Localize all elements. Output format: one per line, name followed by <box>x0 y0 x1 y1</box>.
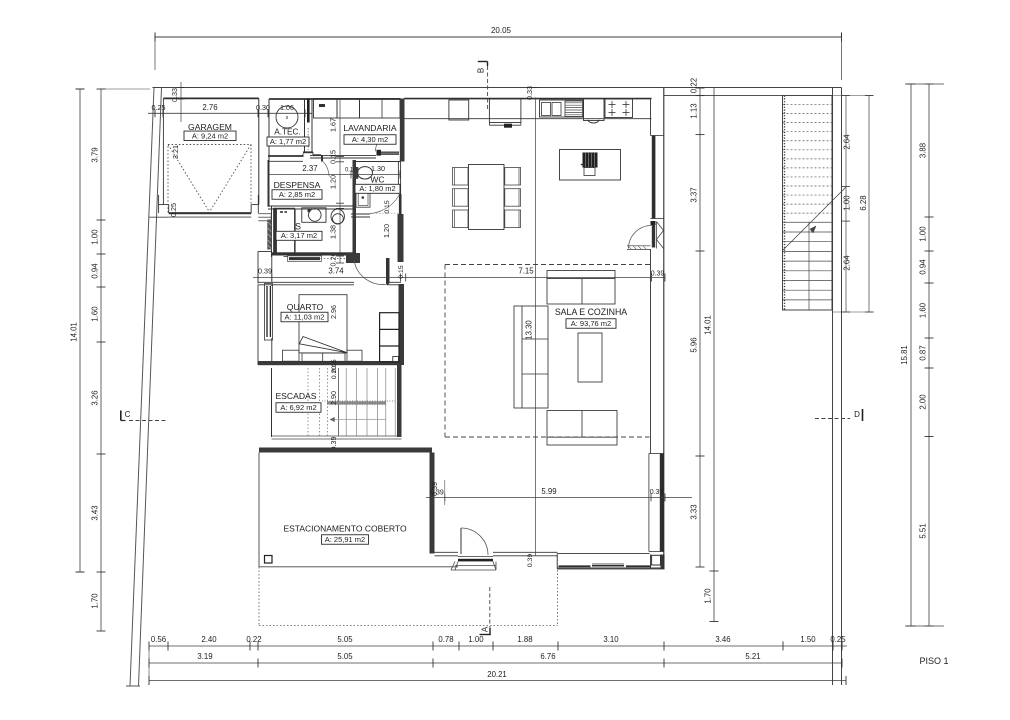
svg-text:7.15: 7.15 <box>518 267 534 276</box>
svg-text:0.33: 0.33 <box>170 88 179 102</box>
svg-text:A: 2,85 m2: A: 2,85 m2 <box>279 190 315 199</box>
svg-text:3.21: 3.21 <box>171 145 180 159</box>
svg-text:5.21: 5.21 <box>745 652 760 661</box>
svg-text:D: D <box>854 410 860 419</box>
svg-text:0.25: 0.25 <box>830 635 846 644</box>
svg-text:2.76: 2.76 <box>202 103 217 112</box>
svg-text:A: 6,92 m2: A: 6,92 m2 <box>280 403 316 412</box>
svg-text:5.51: 5.51 <box>919 523 928 538</box>
svg-text:0.15: 0.15 <box>329 150 338 164</box>
svg-text:2.64: 2.64 <box>843 255 852 271</box>
svg-text:1.00: 1.00 <box>468 635 484 644</box>
svg-text:0.39: 0.39 <box>650 489 664 496</box>
svg-text:DESPENSA: DESPENSA <box>274 180 321 190</box>
svg-text:0.15: 0.15 <box>384 200 391 213</box>
svg-text:0.94: 0.94 <box>919 259 928 275</box>
svg-text:14.01: 14.01 <box>704 315 713 335</box>
svg-text:0.22: 0.22 <box>690 78 699 93</box>
svg-text:3.88: 3.88 <box>919 143 928 158</box>
svg-text:1.00: 1.00 <box>843 195 852 211</box>
svg-text:2.96: 2.96 <box>329 305 338 319</box>
svg-text:0.78: 0.78 <box>438 635 453 644</box>
svg-text:A: 9,24 m2: A: 9,24 m2 <box>192 131 228 140</box>
svg-text:1.60: 1.60 <box>919 302 928 318</box>
svg-text:A: 1,77 m2: A: 1,77 m2 <box>270 137 306 146</box>
svg-text:A: 3,17 m2: A: 3,17 m2 <box>281 231 317 240</box>
svg-text:0.30: 0.30 <box>256 103 270 112</box>
svg-text:1.13: 1.13 <box>690 103 699 118</box>
svg-text:5.99: 5.99 <box>541 487 556 496</box>
svg-text:1.70: 1.70 <box>704 588 713 604</box>
svg-text:2.40: 2.40 <box>201 635 217 644</box>
svg-text:B: B <box>477 68 486 73</box>
svg-text:3.10: 3.10 <box>603 635 619 644</box>
svg-text:5.96: 5.96 <box>690 337 699 352</box>
svg-text:A: 11,03 m2: A: 11,03 m2 <box>285 313 325 322</box>
svg-text:0.94: 0.94 <box>91 263 100 279</box>
svg-text:C: C <box>125 410 131 419</box>
svg-text:0.22: 0.22 <box>246 635 261 644</box>
svg-text:1.70: 1.70 <box>91 593 100 609</box>
svg-text:5.05: 5.05 <box>337 652 353 661</box>
svg-text:1.60: 1.60 <box>91 306 100 322</box>
svg-text:0.25: 0.25 <box>169 203 178 217</box>
svg-text:3.33: 3.33 <box>690 504 699 519</box>
svg-text:1.20: 1.20 <box>329 175 338 189</box>
svg-text:20.21: 20.21 <box>487 670 507 679</box>
svg-text:15.81: 15.81 <box>900 345 909 365</box>
svg-text:0.39: 0.39 <box>527 554 534 567</box>
svg-text:1.30: 1.30 <box>371 164 385 173</box>
svg-text:2.64: 2.64 <box>843 134 852 150</box>
svg-text:3.79: 3.79 <box>91 147 100 162</box>
svg-text:1.38: 1.38 <box>329 225 338 239</box>
svg-text:1.50: 1.50 <box>800 635 816 644</box>
svg-text:A: 1,80 m2: A: 1,80 m2 <box>359 184 395 193</box>
svg-text:3.74: 3.74 <box>328 267 344 276</box>
svg-text:A: A <box>481 626 490 632</box>
svg-text:QUARTO: QUARTO <box>287 302 324 312</box>
svg-text:0.56: 0.56 <box>151 635 166 644</box>
svg-text:A: 25,91 m2: A: 25,91 m2 <box>325 535 365 544</box>
svg-text:0.87: 0.87 <box>919 345 928 360</box>
svg-text:1.00: 1.00 <box>919 226 928 242</box>
svg-text:LAVANDARIA: LAVANDARIA <box>343 123 396 133</box>
svg-text:3.46: 3.46 <box>715 635 730 644</box>
svg-text:1.20: 1.20 <box>382 224 391 238</box>
svg-text:0.15: 0.15 <box>398 265 405 278</box>
svg-text:13.30: 13.30 <box>525 320 534 340</box>
svg-text:0.39: 0.39 <box>258 267 272 276</box>
svg-text:20.05: 20.05 <box>491 26 512 35</box>
svg-text:SALA E COZINHA: SALA E COZINHA <box>555 307 627 317</box>
svg-text:PISO 1: PISO 1 <box>919 656 948 666</box>
svg-text:1.67: 1.67 <box>329 118 338 132</box>
svg-text:ESCADAS: ESCADAS <box>275 391 316 401</box>
svg-text:A.TEC.: A.TEC. <box>274 128 300 137</box>
svg-text:0.20: 0.20 <box>331 366 338 379</box>
svg-text:2.37: 2.37 <box>302 164 317 173</box>
svg-text:1.88: 1.88 <box>517 635 532 644</box>
svg-text:A: 93,76 m2: A: 93,76 m2 <box>571 319 611 328</box>
svg-text:3.37: 3.37 <box>690 187 699 202</box>
svg-text:ESTACIONAMENTO COBERTO: ESTACIONAMENTO COBERTO <box>283 524 407 534</box>
svg-text:1.00: 1.00 <box>91 229 100 245</box>
svg-text:6.76: 6.76 <box>540 652 555 661</box>
svg-text:3.26: 3.26 <box>91 390 100 405</box>
svg-text:2.00: 2.00 <box>919 394 928 410</box>
svg-text:3.43: 3.43 <box>91 505 100 520</box>
svg-text:2.90: 2.90 <box>329 391 338 405</box>
svg-text:0.39: 0.39 <box>651 270 665 277</box>
svg-text:0.39: 0.39 <box>430 490 444 497</box>
svg-text:A: 4,30 m2: A: 4,30 m2 <box>352 135 388 144</box>
svg-text:WC: WC <box>370 175 384 185</box>
svg-text:S: S <box>295 222 301 232</box>
svg-text:5.05: 5.05 <box>337 635 353 644</box>
svg-text:14.01: 14.01 <box>70 322 79 342</box>
svg-text:3.19: 3.19 <box>197 652 212 661</box>
svg-text:6.28: 6.28 <box>859 195 868 210</box>
